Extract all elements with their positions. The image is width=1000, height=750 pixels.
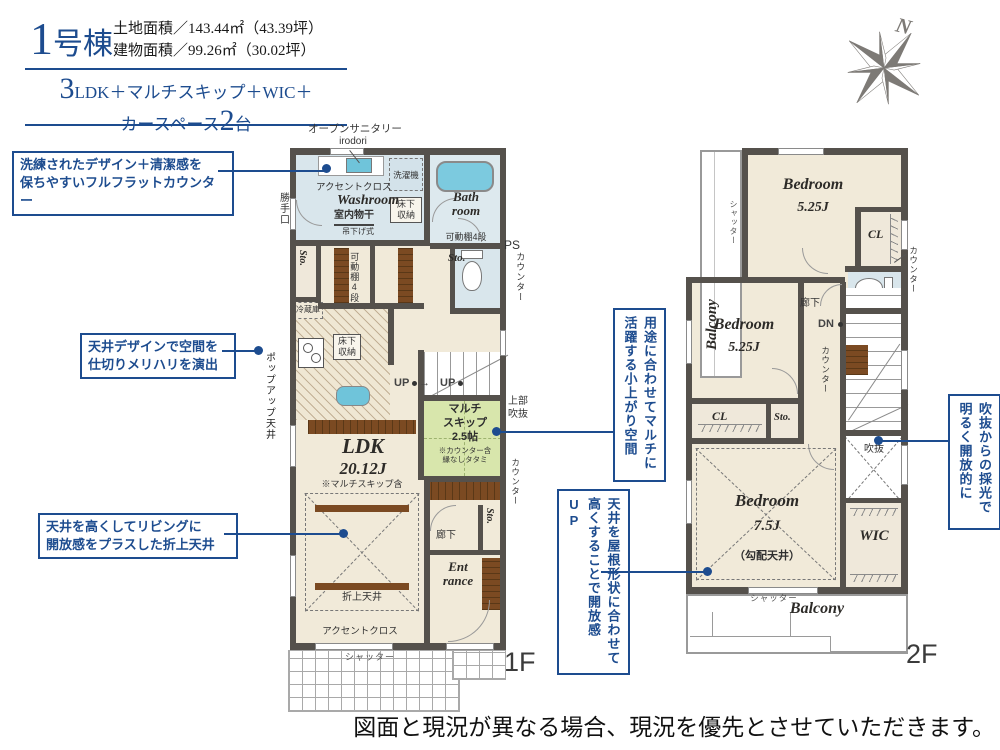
wall	[430, 550, 506, 555]
bedroom3-label: Bedroom	[712, 492, 822, 511]
wall	[855, 207, 901, 212]
wall	[742, 148, 748, 282]
counter-label-1f-right: カウンター	[514, 252, 525, 332]
window-marker	[500, 330, 506, 356]
header-rule-top	[25, 68, 347, 70]
shutter-label-2f-top: シャッター	[728, 200, 738, 272]
wall	[845, 266, 907, 272]
callout-flat-counter: 洗練されたデザイン＋清潔感を 保ちやすいフルフラットカウンター	[12, 151, 234, 216]
dn-dot	[838, 322, 843, 327]
up-label-1: UP	[394, 377, 409, 391]
closet-shelf-2	[398, 248, 413, 303]
compass-rose-icon	[838, 22, 930, 114]
stove-burner-icon	[303, 343, 313, 353]
ldk-note-label: ※マルチスキップ含	[312, 479, 412, 490]
multiskip-note: ※カウンター含 縁なしタタミ	[424, 446, 506, 465]
wall	[388, 305, 394, 365]
popup-ceiling-label: ポップアップ天井	[262, 352, 275, 464]
kitchen-counter-wood	[308, 420, 416, 434]
callout-folded-ceiling: 天井を高くしてリビングに 開放感をプラスした折上天井	[38, 513, 238, 559]
counter-label-2f-right: カウンター	[908, 246, 919, 310]
toilet-bowl-1f-icon	[462, 261, 482, 291]
wall	[370, 245, 375, 305]
balcony-step-line	[830, 636, 831, 652]
up-dot	[412, 381, 417, 386]
ceiling-beam	[315, 505, 409, 512]
callout-ceiling-design: 天井デザインで空間を 仕切りメリハリを演出	[80, 333, 236, 379]
ps-label: PS	[504, 238, 520, 253]
wall	[424, 395, 506, 401]
bedroom3-size-label: 7.5J	[712, 518, 822, 535]
open-sanitary-sub-label: irodori	[308, 136, 398, 149]
wall	[855, 207, 861, 267]
wall	[845, 498, 902, 503]
wall	[742, 148, 908, 155]
unit-title: 1号棟	[30, 12, 113, 65]
wall	[742, 277, 845, 283]
plan-summary: 3LDK＋マルチスキップ＋WIC＋ カースペース2台	[25, 72, 347, 138]
wall	[478, 505, 483, 550]
callout-line	[224, 533, 344, 535]
callout-dot	[703, 567, 712, 576]
bathroom-label: Bath room	[442, 190, 490, 219]
closet-hanger-marks	[890, 214, 898, 264]
bedroom1-size-label: 5.25J	[768, 200, 858, 215]
callout-multi-space: 用途に合わせてマルチに活躍する小上がり空間	[613, 308, 666, 482]
up-dot	[458, 381, 463, 386]
hanging-type-label: 吊下げ式	[342, 227, 374, 237]
callout-dot	[339, 529, 348, 538]
folded-ceiling-label: 折上天井	[320, 592, 404, 605]
wall	[450, 308, 506, 314]
plan-ldk-count: 3	[60, 72, 75, 105]
callout-line	[218, 170, 326, 172]
window-marker	[686, 320, 692, 364]
stairs-1f	[424, 352, 502, 398]
land-area: 土地面積／143.44㎡（43.39坪）	[113, 17, 323, 38]
wall	[798, 398, 804, 444]
kitchen-door-label: 勝手口	[276, 192, 289, 244]
wall	[766, 403, 771, 438]
building-area: 建物面積／99.26㎡（30.02坪）	[113, 39, 316, 60]
wall	[845, 430, 902, 436]
shutter-label-1f: シャッター	[330, 652, 410, 663]
dn-label: DN	[818, 318, 834, 332]
entrance-opening	[446, 643, 494, 650]
hallway-label-2f: 廊下	[800, 298, 820, 311]
up-label-2: UP	[440, 377, 455, 391]
underfloor-storage-label-2: 床下 収納	[333, 336, 361, 358]
callout-line	[222, 350, 258, 352]
callout-roof-ceiling: 天井を屋根形状に合わせて高くすることで開放感UP	[557, 489, 630, 675]
unit-number: 1	[30, 13, 53, 64]
closet-hanger-marks	[850, 508, 898, 516]
wall	[845, 308, 907, 314]
sto-label-1: Sto.	[297, 250, 308, 292]
bedroom2-label: Bedroom	[698, 316, 790, 334]
sto-label-3: Sto.	[484, 508, 495, 550]
bathtub-icon	[436, 161, 494, 192]
ceiling-beam	[315, 583, 409, 590]
callout-dot	[874, 436, 883, 445]
window-marker	[290, 425, 296, 467]
wall	[290, 148, 506, 155]
wall	[424, 476, 430, 643]
bedroom2-size-label: 5.25J	[698, 340, 790, 355]
callout-dot	[492, 427, 501, 436]
callout-dot	[254, 346, 263, 355]
balcony-step-line	[830, 651, 906, 652]
window-marker	[901, 220, 908, 250]
floor-label-2f: 2F	[906, 638, 938, 672]
wall	[424, 476, 506, 482]
window-marker	[778, 148, 824, 155]
entrance-porch-grid	[452, 650, 506, 680]
counter-label-1f-mid: カウンター	[510, 458, 521, 516]
callout-line	[601, 571, 708, 573]
entrance-label: Ent rance	[436, 560, 480, 589]
closet-hanger-marks	[850, 574, 898, 582]
sto-label-2: Sto.	[448, 252, 465, 264]
open-sanitary-label: オープンサニタリー	[308, 123, 402, 136]
washroom-sink-icon	[346, 158, 372, 173]
room-fill-cl2	[692, 403, 768, 438]
washer-label: 洗濯機	[389, 170, 423, 181]
wall	[424, 155, 430, 245]
balcony-step-line	[690, 636, 830, 637]
wic-label: WIC	[850, 528, 898, 545]
sloped-ceiling-label: （勾配天井）	[708, 550, 826, 564]
window-marker	[901, 350, 908, 390]
ldk-size-label: 20.12J	[325, 460, 401, 479]
void-label: 吹抜	[864, 444, 884, 457]
up-arrow: →	[419, 377, 430, 391]
callout-dot	[322, 164, 331, 173]
bedroom1-label: Bedroom	[768, 176, 858, 194]
closet-shelf-1	[334, 248, 349, 303]
hallway-label-1f: 廊下	[436, 530, 456, 543]
bath-shelf-label: 可動棚4段	[434, 232, 498, 243]
sto-label-2f: Sto.	[774, 412, 791, 424]
cl2-label: CL	[712, 410, 727, 423]
header-rule-bottom	[25, 124, 347, 126]
callout-line	[879, 440, 948, 442]
balcony-post	[712, 612, 713, 636]
closet-hanger-marks	[698, 424, 762, 432]
balcony-bottom-label: Balcony	[772, 600, 862, 618]
stove-burner-icon	[311, 353, 321, 363]
wall	[316, 245, 321, 303]
plan-ldk-rest: LDK＋マルチスキップ＋WIC＋	[75, 83, 313, 102]
upper-void-label: 上部 吹抜	[508, 396, 534, 421]
floorplan-page: 1号棟 土地面積／143.44㎡（43.39坪） 建物面積／99.26㎡（30.…	[0, 0, 1000, 750]
shutter-opening	[315, 643, 393, 650]
window-marker	[330, 148, 364, 155]
door-opening	[290, 198, 296, 230]
window-marker	[686, 480, 692, 524]
ldk-label: LDK	[325, 435, 401, 458]
shelf-vertical-label: 可動棚4段	[348, 252, 359, 306]
plan-line2: カースペース2台	[25, 104, 347, 138]
wall	[296, 297, 318, 302]
unit-suffix: 号棟	[53, 28, 113, 61]
window-marker	[901, 445, 908, 485]
callout-line	[497, 431, 613, 433]
multiskip-label: マルチ スキップ 2.5帖	[424, 403, 506, 444]
cl1-label: CL	[868, 228, 883, 241]
wall	[692, 398, 802, 404]
plan-line1: 3LDK＋マルチスキップ＋WIC＋	[25, 72, 347, 106]
floor-label-1f: 1F	[504, 646, 536, 680]
wall	[430, 243, 500, 249]
counter-label-2f-mid: カウンター	[820, 346, 831, 400]
window-marker	[290, 555, 296, 597]
kitchen-sink-icon	[336, 386, 370, 406]
indoor-drying-label: 室内物干	[334, 210, 374, 226]
accent-cross-bottom-label: アクセントクロス	[310, 626, 410, 638]
stove-icon	[298, 338, 324, 368]
wall	[692, 438, 802, 444]
plan-car-count: 2	[220, 104, 235, 137]
disclaimer-text: 図面と現況が異なる場合、現況を優先とさせていただきます。	[300, 708, 995, 742]
washroom-label: Washroom	[318, 193, 418, 208]
callout-void-light: 吹抜からの採光で明るく開放的に	[948, 394, 1000, 530]
